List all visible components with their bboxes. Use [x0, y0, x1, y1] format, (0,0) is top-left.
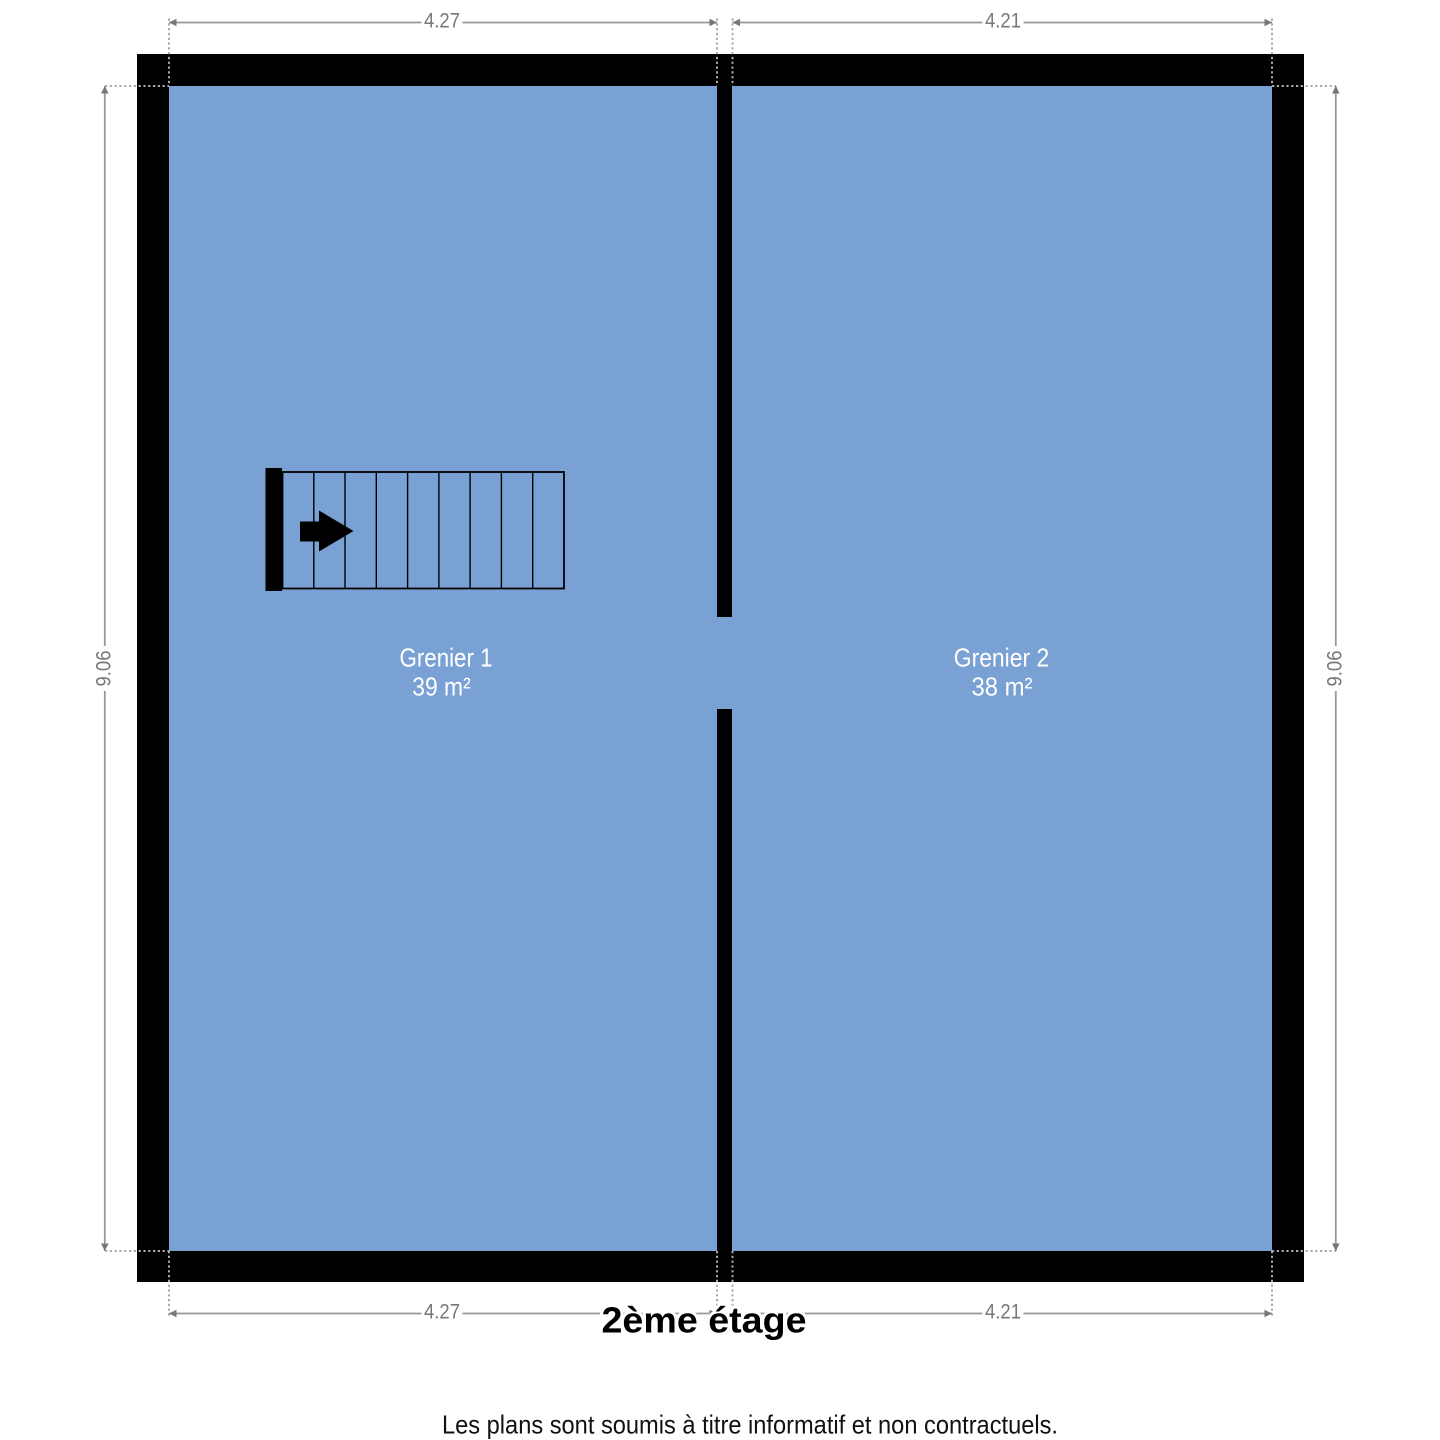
svg-text:39 m²: 39 m²: [412, 672, 471, 702]
svg-text:4.27: 4.27: [424, 10, 460, 33]
svg-text:4.27: 4.27: [424, 1301, 460, 1324]
svg-text:Grenier 2: Grenier 2: [954, 643, 1050, 673]
svg-text:4.21: 4.21: [985, 10, 1021, 33]
svg-text:2ème étage: 2ème étage: [602, 1300, 807, 1341]
svg-text:9.06: 9.06: [1324, 651, 1347, 687]
svg-text:38 m²: 38 m²: [972, 672, 1033, 702]
svg-text:Grenier 1: Grenier 1: [400, 643, 493, 673]
svg-text:Les plans sont soumis à titre: Les plans sont soumis à titre informatif…: [442, 1410, 1058, 1440]
svg-text:9.06: 9.06: [93, 651, 116, 687]
svg-text:4.21: 4.21: [985, 1301, 1021, 1324]
